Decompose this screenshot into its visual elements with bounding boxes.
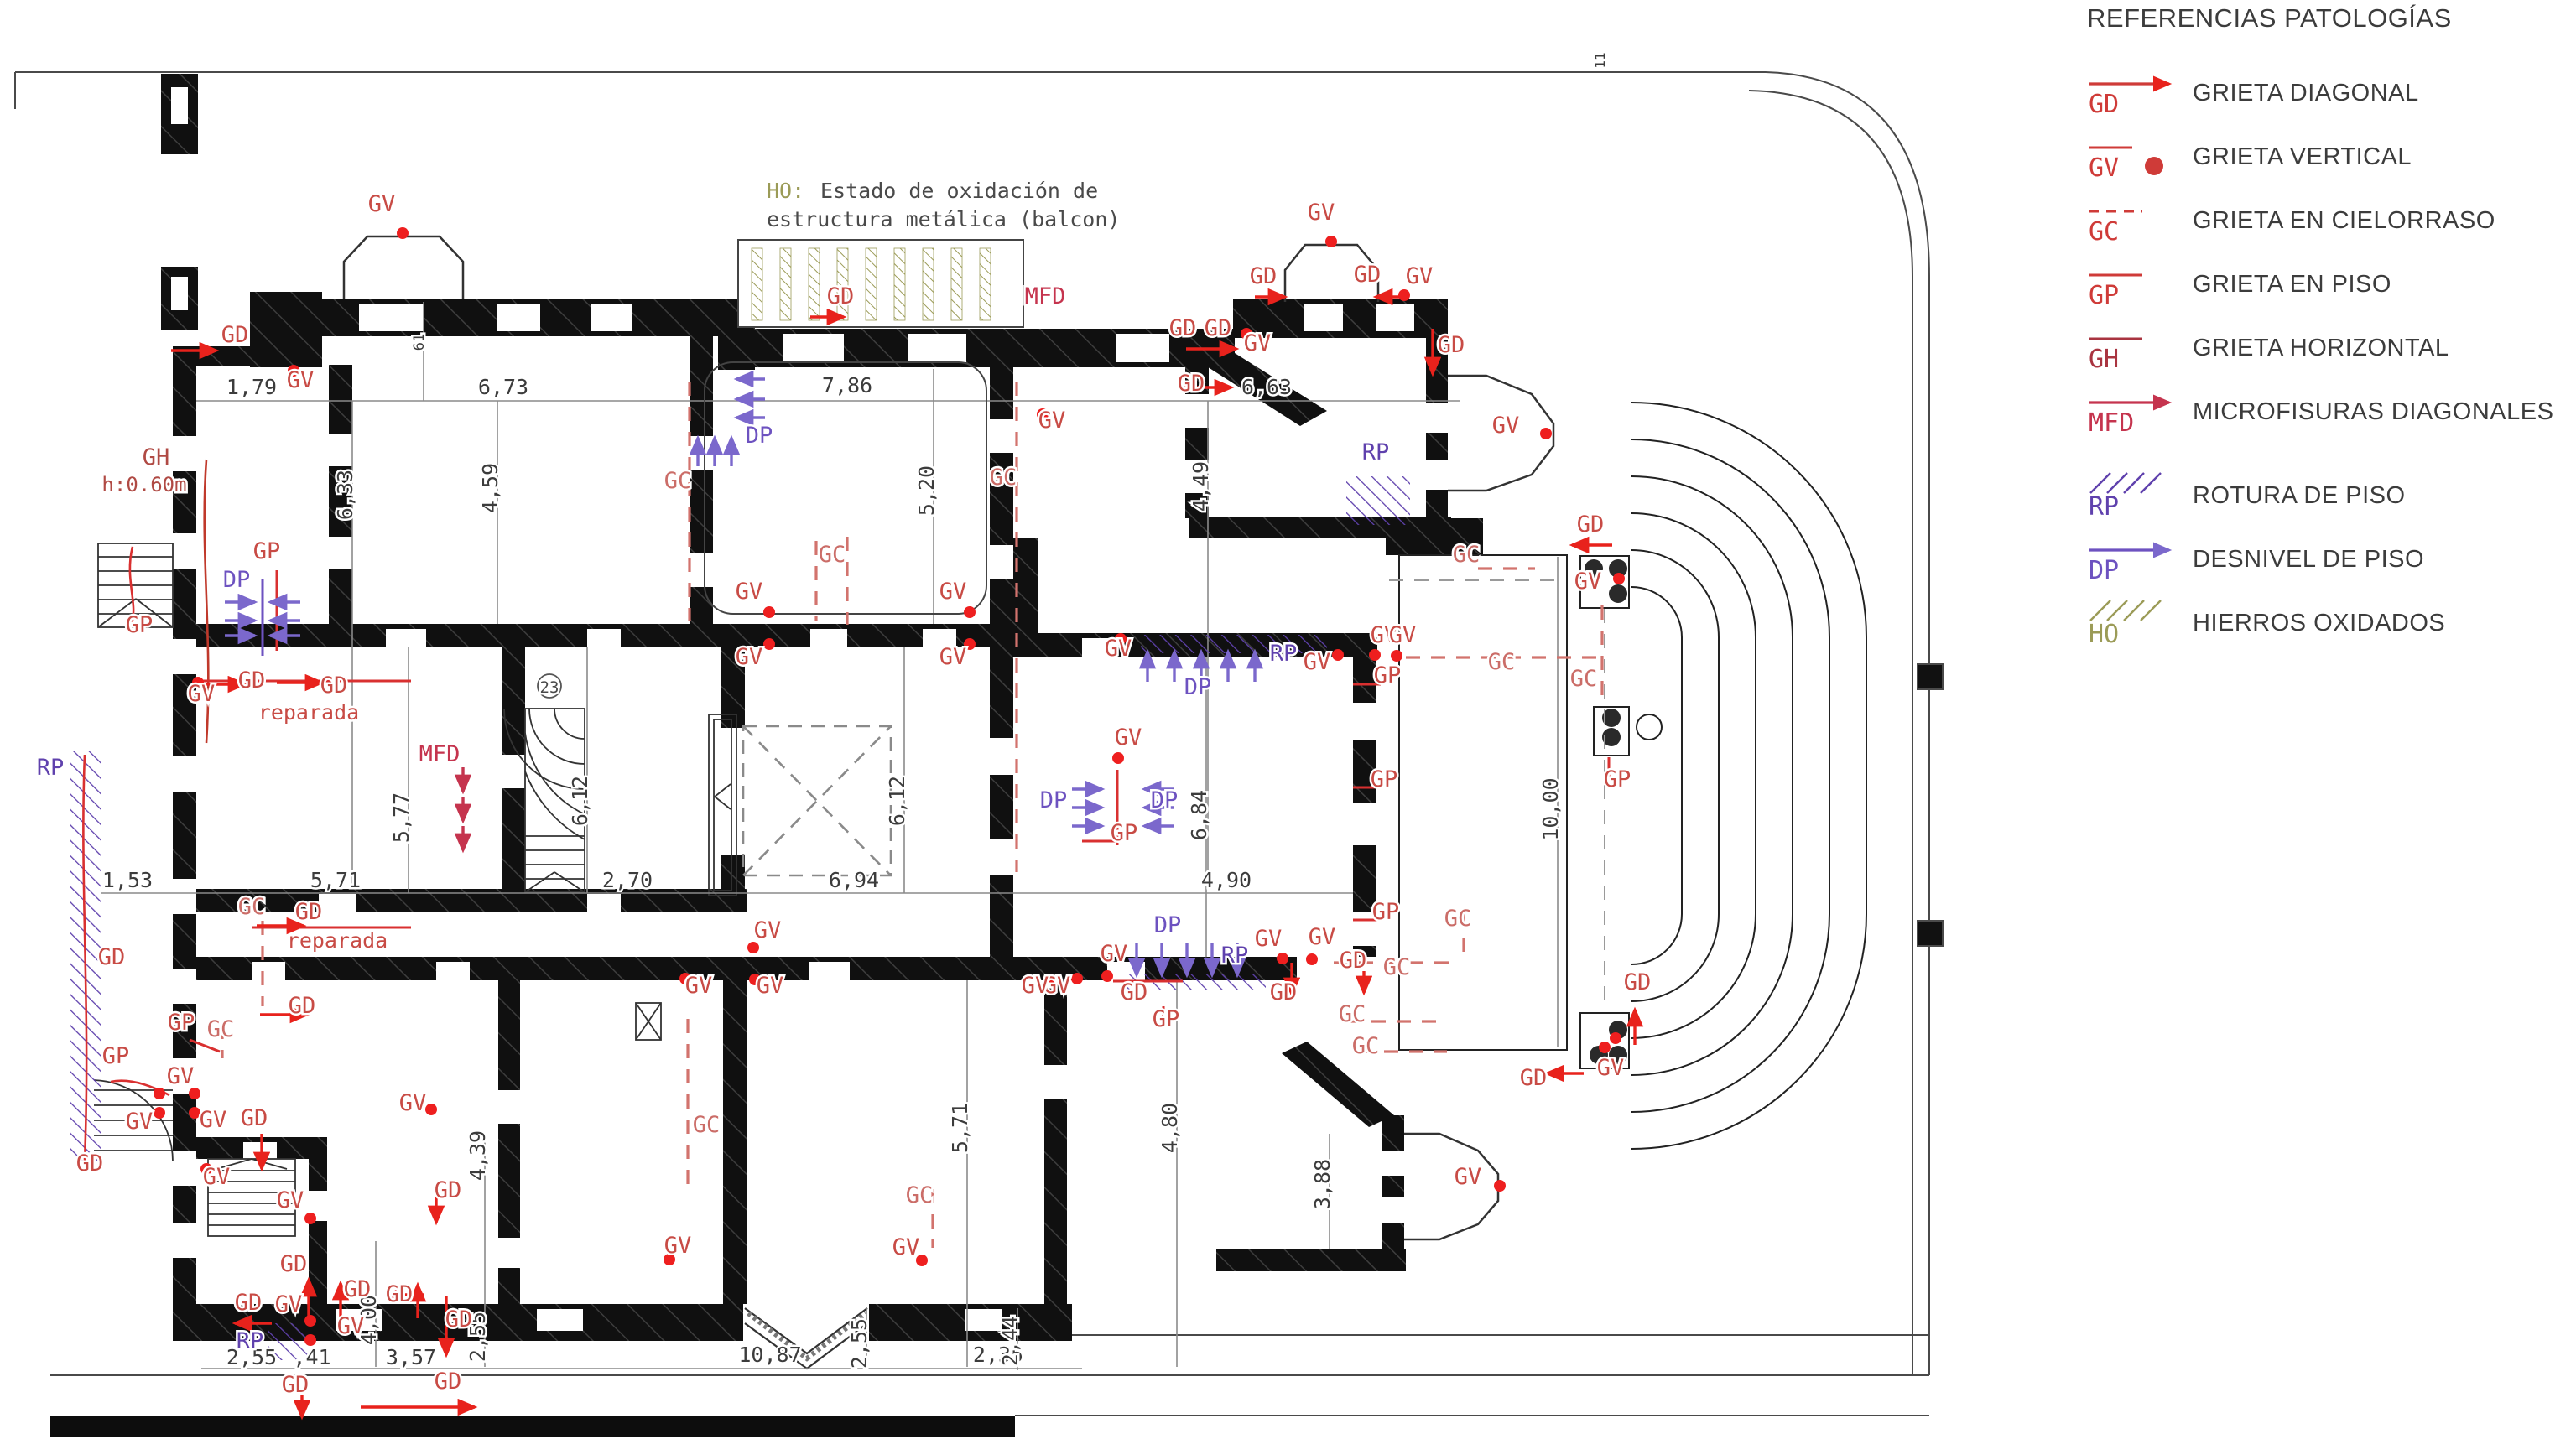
annotation-label-gc: GC [1339,1001,1366,1027]
annotation-label-gv: GV [126,1109,154,1135]
ho-strip [951,248,962,320]
annotation-label-gv: GV [685,973,713,999]
annotation-label-gv: GV [892,1234,920,1260]
dimension-text-vertical: 6,33 [333,470,357,520]
annotation-label-ho:: HO: [767,179,804,203]
annotation-label-gv: GV [1455,1164,1482,1190]
annotation-label-gd: GD [435,1369,462,1395]
page: { "legend": { "title": "REFERENCIAS PATO… [0,0,2576,1439]
gv-dot [1398,289,1410,301]
legend-symbol-gh-icon: GH [2082,320,2193,376]
gv-dot [425,1104,437,1115]
dimension-text-vertical: 2,44 [998,1316,1023,1366]
annotation-label-gd: GD [435,1177,462,1203]
annotation-label-gd: GD [1354,262,1382,288]
annotation-label-gc: GC [819,542,846,568]
annotation-label-gd: GD [1169,315,1197,341]
dimension-text: 4,90 [1201,868,1252,892]
annotation-label-dp: DP [746,423,773,449]
annotation-label-gv: GV [1389,622,1417,648]
annotation-label-gp: GP [1153,1006,1180,1032]
legend-item-gp: GPGRIETA EN PISO [2082,257,2573,312]
annotation-label-gv: GV [1406,263,1434,289]
dimension-text-vertical: 4,39 [466,1130,490,1181]
gv-dot [154,1107,165,1119]
ho-strip [752,248,762,320]
annotation-label-gv: GV [1304,649,1331,675]
gv-dot [304,1315,316,1327]
annotation-label-gd: GD [282,1372,310,1398]
annotation-label-rp: RP [37,755,65,781]
annotation-label-gv: GV [200,1107,227,1133]
annotation-label-gd: GD [1270,979,1298,1005]
annotation-label-gv: GV [757,973,784,999]
dimension-text-vertical: 5,20 [914,465,939,516]
annotation-label-gd: GD [98,944,126,970]
legend-panel: REFERENCIAS PATOLOGÍAS GDGRIETA DIAGONAL… [2082,3,2573,659]
annotation-label-gp: GP [168,1010,195,1036]
gv-dot [1306,953,1318,965]
dimension-text: 1,79 [226,375,277,399]
legend-code: GV [2089,153,2119,183]
legend-label: ROTURA DE PISO [2193,482,2406,510]
annotation-label-rp: RP [1270,641,1298,667]
annotation-label-gc: GC [1383,954,1411,980]
dimension-text: 10,87 [738,1343,801,1367]
annotation-label-gd: GD [280,1251,308,1277]
annotation-label-gd: GD [827,283,855,309]
gv-dot [1325,236,1337,247]
dimension-text-vertical: 3,88 [1310,1159,1335,1209]
dimension-text-vertical: 61 [411,334,428,351]
annotation-label-gc: GC [664,468,692,494]
annotation-label-gc: GC [1570,666,1598,692]
dimension-text-vertical: 5,71 [948,1103,972,1153]
gv-dot [1332,649,1344,661]
annotation-label-gc: GC [693,1112,721,1138]
ho-strip [809,248,820,320]
dimension-text: 5,71 [310,868,361,892]
annotation-label-rp: RP [1362,439,1390,465]
gv-dot [1599,1042,1611,1053]
legend-label: GRIETA VERTICAL [2193,143,2412,171]
annotation-label-dp: DP [1151,787,1179,813]
annotation-label-gv: GV [664,1233,692,1259]
dimension-text-vertical: 4,49 [1189,461,1213,512]
dimension-text-vertical: 6,12 [568,776,592,826]
legend-item-mfd: MFDMICROFISURAS DIAGONALES [2082,384,2573,439]
gv-dot [763,638,775,650]
annotation-label-gv: GV [1309,924,1336,950]
annotation-label-gd: GD [1178,371,1205,397]
annotation-label-gv: GV [188,681,216,707]
annotation-label-gc: GC [1352,1033,1380,1059]
annotation-label-gd: GD [1577,512,1605,538]
dimension-text: 6,73 [478,375,528,399]
annotation-label-gp: GP [253,538,281,564]
annotation-label-gd: GD [1438,332,1465,358]
annotation-label-gd: GD [1340,948,1367,974]
annotation-label-gd: GD [295,899,323,925]
legend-code: GD [2089,90,2119,119]
annotation-label-gd: GD [1205,315,1232,341]
annotation-label-gv: GV [939,644,967,670]
annotation-label-mfd: MFD [419,741,461,767]
annotation-label-text: Estado de oxidación de [820,179,1098,203]
dimension-text: 2,70 [602,868,653,892]
annotation-label-gc: GC [906,1182,934,1208]
annotation-label-23: 23 [540,678,559,697]
dimension-text: 6,63 [1241,375,1292,399]
annotation-label-gc: GC [1444,906,1472,932]
ho-strip [980,248,991,320]
conservatory [1399,403,1866,1149]
annotation-label-gv: GV [754,917,782,943]
dimension-text: 6,94 [829,868,879,892]
annotation-label-text: reparada [258,700,359,725]
annotation-label-gp: GP [102,1043,130,1069]
annotation-label-gd: GD [344,1276,372,1302]
legend-code: MFD [2089,408,2134,438]
legend-item-gh: GHGRIETA HORIZONTAL [2082,320,2573,376]
gv-dot [747,942,759,953]
legend-symbol-ho-icon: HO [2082,595,2193,651]
legend-label: GRIETA DIAGONAL [2193,80,2419,107]
legend-symbol-gp-icon: GP [2082,257,2193,312]
legend-label: DESNIVEL DE PISO [2193,546,2424,574]
legend-symbol-gc-icon: GC [2082,193,2193,248]
legend-items: GDGRIETA DIAGONALGVGRIETA VERTICALGCGRIE… [2082,65,2573,651]
legend-symbol-gd-icon: GD [2082,65,2193,121]
gv-dot [1101,970,1113,982]
gv-dot [964,606,976,618]
legend-label: HIERROS OXIDADOS [2193,610,2445,637]
legend-code: GP [2089,281,2119,310]
annotation-label-gv: GV [287,367,315,393]
annotation-label-gv: GV [337,1313,365,1339]
gv-dot [304,1213,316,1224]
legend-code: HO [2089,620,2119,649]
annotation-label-gd: GD [76,1151,104,1177]
exterior-chimneys [161,74,198,330]
balcony-ho [738,240,1023,327]
gv-dot [189,1088,200,1099]
annotation-label-gd: GD [235,1290,263,1316]
annotation-label-gv: GV [1105,636,1132,662]
annotation-label-gv: GV [1574,569,1602,595]
legend-symbol-rp-icon: RP [2082,468,2193,523]
ho-strip [780,248,791,320]
annotation-label-gd: GD [289,993,316,1019]
conservatory-columns [1585,559,1627,1064]
annotation-label-gp: GP [1371,766,1398,792]
legend-item-dp: DPDESNIVEL DE PISO [2082,532,2573,587]
gv-dot [1071,973,1083,984]
annotation-label-gv: GV [1597,1055,1625,1081]
annotation-label-gv: GV [203,1164,231,1190]
annotation-label-gc: GC [207,1016,235,1042]
annotation-label-gv: GV [1115,725,1142,751]
legend-item-gc: GCGRIETA EN CIELORRASO [2082,193,2573,248]
annotation-label-gc: GC [990,465,1017,491]
gv-dot [1277,953,1288,964]
annotation-label-text: reparada [287,928,388,953]
legend-label: GRIETA HORIZONTAL [2193,335,2449,362]
annotation-label-dp: DP [1040,787,1068,813]
floor-plan-drawing: 1,796,737,866,631,535,712,706,944,902,55… [0,0,2063,1439]
legend-code: DP [2089,556,2119,585]
annotation-label-gv: GV [736,644,763,670]
legend-symbol-mfd-icon: MFD [2082,384,2193,439]
dimension-text-vertical: 6,84 [1187,790,1211,840]
dimension-text: ,41 [293,1345,330,1369]
legend-item-ho: HOHIERROS OXIDADOS [2082,595,2573,651]
annotation-label-gd: GD [386,1281,414,1307]
annotation-label-gv: GV [1255,926,1283,952]
annotation-label-gd: GD [320,673,348,699]
annotation-label-gv: GV [167,1063,195,1089]
legend-label: GRIETA EN PISO [2193,271,2391,299]
annotation-label-gv: GV [368,191,396,217]
annotation-label-gv: GV [939,579,967,605]
gv-dot [154,1088,165,1099]
annotation-label-gp: GP [1372,899,1400,925]
annotation-label-gv: GV [277,1187,304,1213]
annotation-label-gv: GV [1101,941,1128,967]
annotation-label-text: estructura metálica (balcon) [767,207,1120,231]
walls [173,292,1483,1341]
gv-dot [1391,650,1402,662]
ho-strip [866,248,877,320]
annotation-label-gd: GD [238,668,266,694]
annotation-label-gv: GV [1492,413,1520,439]
legend-title: REFERENCIAS PATOLOGÍAS [2087,3,2573,34]
annotation-label-gd: GD [1250,263,1278,289]
annotation-label-gp: GP [1604,766,1631,792]
dimension-text-vertical: 11 [1592,52,1608,68]
annotation-label-gh: GH [143,444,170,470]
annotation-label-gd: GD [1121,979,1148,1005]
legend-code: GH [2089,345,2119,374]
ho-strip [894,248,905,320]
dimension-text-vertical: 2,55 [847,1318,872,1369]
floor-plan-stage: 1,796,737,866,631,535,712,706,944,902,55… [0,0,2576,1439]
gv-dot [1610,1032,1621,1044]
annotation-label-gd: GD [1520,1065,1548,1091]
dimension-text: 3,57 [386,1345,436,1369]
gv-dot [1369,649,1381,661]
annotation-label-gd: GD [221,322,249,348]
annotation-label-dp: DP [1184,674,1212,700]
annotation-label-gd: GD [241,1105,268,1131]
annotation-label-rp: RP [1221,943,1249,969]
gv-dot [1540,428,1552,439]
gv-dot [1613,573,1625,584]
ho-strip [923,248,934,320]
annotation-label-gv: GV [736,579,763,605]
street-edge [50,1416,1015,1437]
legend-label: GRIETA EN CIELORRASO [2193,207,2495,235]
annotation-label-rp: RP [237,1328,264,1354]
annotation-label-dp: DP [1154,912,1182,938]
legend-code: GC [2089,217,2119,247]
annotation-label-gp: GP [1374,662,1402,688]
annotation-label-gv: GV [275,1291,303,1317]
annotation-label-gv: GV [1308,200,1335,226]
dimension-text-vertical: 5,77 [389,792,414,843]
annotation-label-gd: GD [1624,969,1652,995]
annotation-label-dp: DP [223,567,251,593]
dimension-text: 7,86 [822,373,872,397]
wall-openings [173,304,1448,1341]
gv-dot [304,1334,316,1346]
gv-dot [1494,1180,1506,1192]
legend-item-rp: RPROTURA DE PISO [2082,468,2573,523]
annotation-label-text: h:0.60m [101,473,186,496]
gv-dot [763,606,775,618]
skylight-void [743,726,891,875]
gv-dot [1112,752,1124,764]
legend-symbol-gv-icon: GV [2082,129,2193,184]
legend-item-gv: GVGRIETA VERTICAL [2082,129,2573,184]
annotation-label-gv: GV [1244,330,1272,356]
legend-code: RP [2089,492,2119,522]
annotation-label-gp: GP [1111,820,1138,846]
dimension-text-vertical: 6,12 [885,776,909,826]
annotation-label-gd: GD [445,1307,473,1333]
legend-item-gd: GDGRIETA DIAGONAL [2082,65,2573,121]
annotation-label-gc: GC [238,894,266,920]
annotation-label-gc: GC [1453,542,1481,568]
gv-dot [397,227,409,239]
legend-label: MICROFISURAS DIAGONALES [2193,398,2553,426]
annotation-label-gv: GV [1038,408,1066,434]
annotation-label-gv: GV [399,1090,427,1116]
annotation-label-gp: GP [126,612,154,638]
annotation-label-mfd: MFD [1025,283,1066,309]
annotation-label-gc: GC [1488,649,1516,675]
legend-symbol-dp-icon: DP [2082,532,2193,587]
dimension-text-vertical: 4,80 [1158,1103,1182,1153]
dimension-text-vertical: 4,59 [478,463,502,513]
annotation-label-gv: GV [1022,973,1049,999]
dimension-text-vertical: 10,00 [1538,777,1563,840]
dimension-text: 1,53 [102,868,153,892]
